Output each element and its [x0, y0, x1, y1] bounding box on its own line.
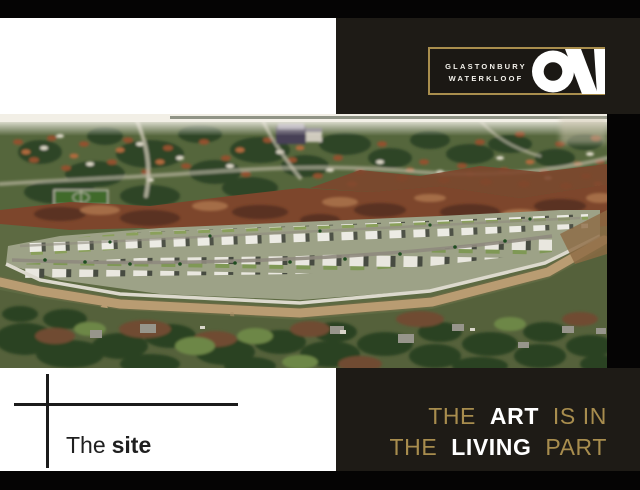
headline-word-emphasis: LIVING: [451, 432, 531, 463]
on-monogram-graphic: [532, 49, 605, 94]
headline-word: PART: [545, 432, 607, 463]
slide-caption: Thesite: [66, 432, 151, 459]
headline: THE ART IS IN THE LIVING PART: [390, 401, 608, 463]
crosshair-horizontal-line: [14, 403, 238, 406]
caption-bold: site: [112, 432, 152, 458]
brand-logo-wordmark: GLASTONBURY WATERKLOOF: [440, 61, 532, 84]
presentation-slide: GLASTONBURY WATERKLOOF ON: [0, 0, 640, 490]
headline-word-emphasis: ART: [490, 401, 539, 432]
headline-line1: THE ART IS IN: [390, 401, 608, 432]
caption-regular: The: [66, 432, 106, 458]
site-aerial-photo: [0, 114, 607, 368]
brand-name-line2: WATERKLOOF: [440, 73, 532, 85]
headline-word: IS IN: [553, 401, 607, 432]
brand-name-line1: GLASTONBURY: [440, 61, 532, 73]
on-monogram-icon: ON: [532, 49, 605, 94]
crosshair-vertical-line: [46, 374, 49, 468]
headline-word: THE: [390, 432, 438, 463]
headline-line2: THE LIVING PART: [390, 432, 608, 463]
headline-word: THE: [428, 401, 476, 432]
